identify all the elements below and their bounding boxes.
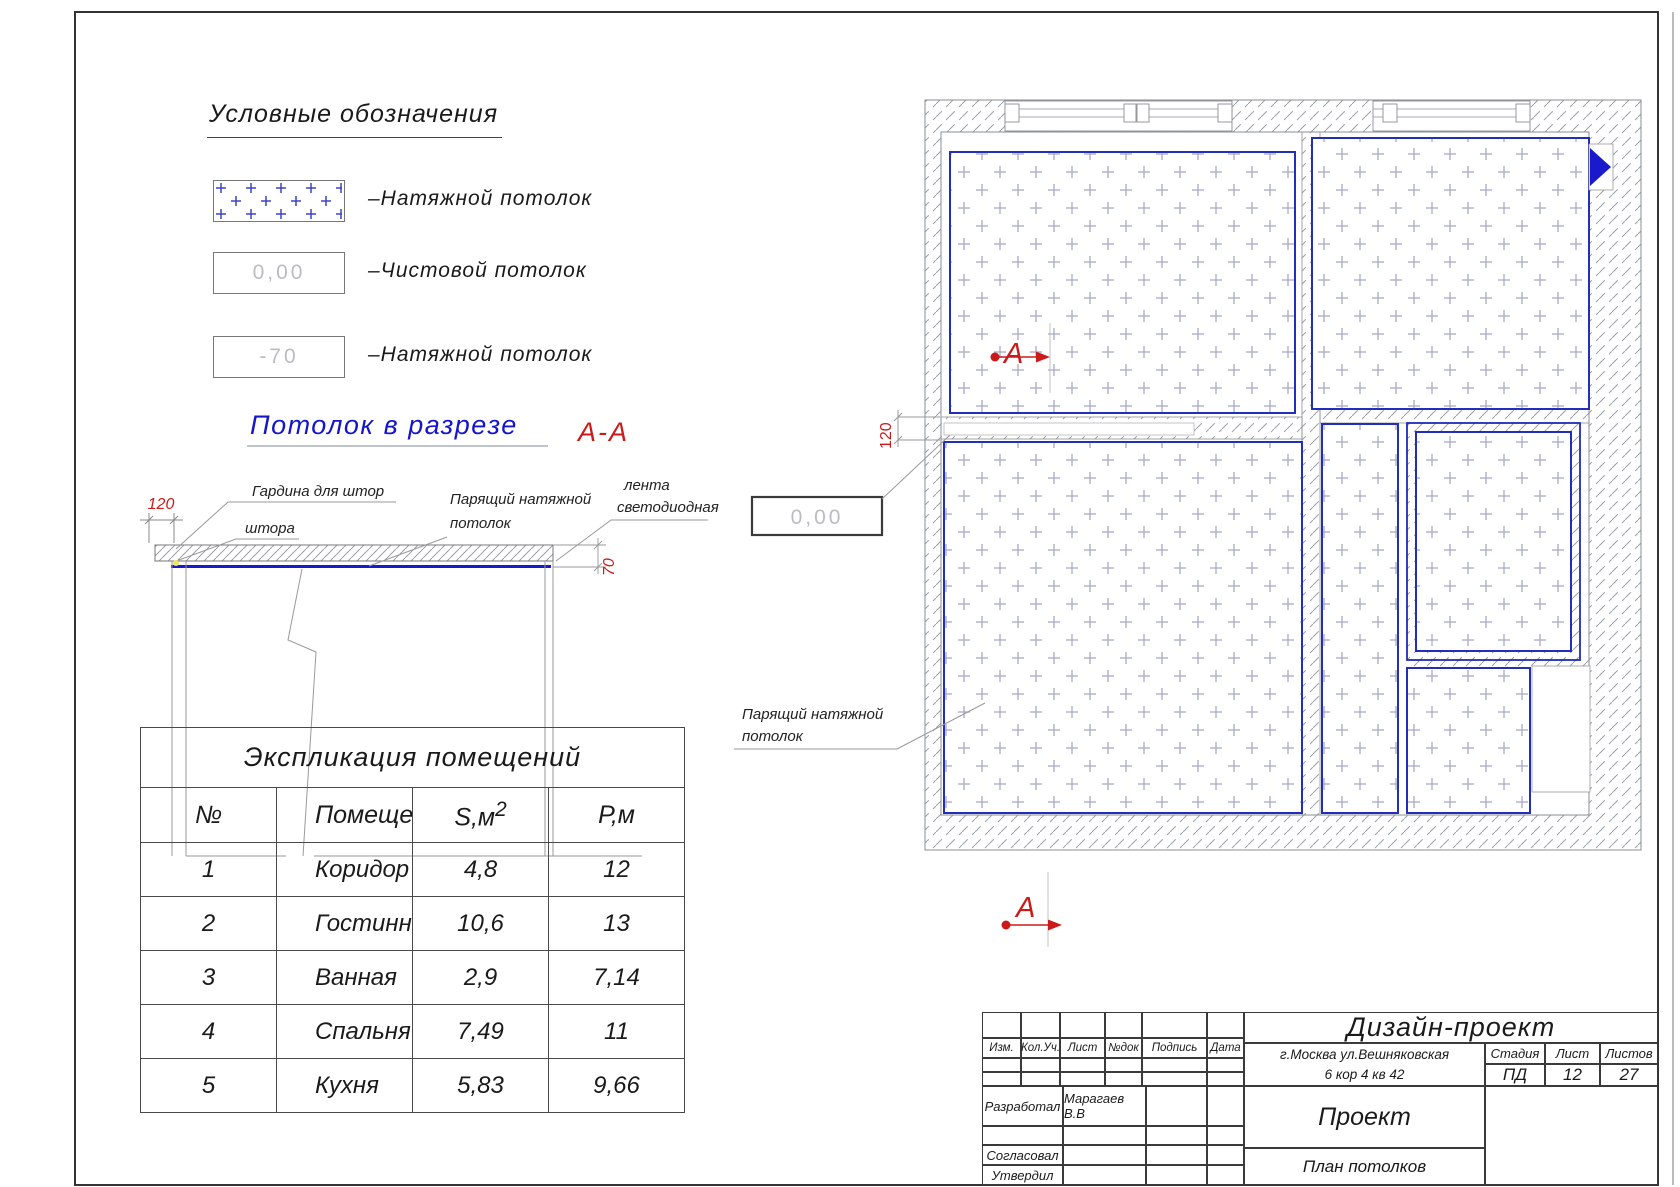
legend-title: Условные обозначения: [207, 100, 502, 138]
stage-value: ПД: [1485, 1064, 1545, 1086]
empty-cell: [1063, 1165, 1146, 1185]
rev-cell: [982, 1058, 1021, 1072]
svg-text:70: 70: [601, 558, 618, 576]
address-line-2: 6 кор 4 кв 42: [1325, 1065, 1405, 1085]
svg-text:Парящий натяжной: Парящий натяжной: [742, 706, 884, 723]
col-header-perimeter: Р,м: [549, 788, 685, 843]
stage-label: Стадия: [1485, 1043, 1545, 1064]
empty-cell: [1146, 1165, 1207, 1185]
table-row: 4 Спальня 7,49 11: [141, 1005, 685, 1059]
agreed-label: Согласовал: [982, 1145, 1063, 1165]
rev-cell: [982, 1012, 1021, 1038]
doc-type: Проект: [1244, 1086, 1485, 1148]
finished-ceiling-strip: [944, 423, 1194, 435]
svg-text:120: 120: [878, 422, 895, 449]
room-corridor-pattern: [1322, 424, 1398, 813]
table-row: 1 Коридор 4,8 12: [141, 843, 685, 897]
empty-cell: [1207, 1126, 1244, 1145]
rev-cell: [1060, 1058, 1105, 1072]
rev-cell: [1207, 1012, 1244, 1038]
col-header-num: №: [141, 788, 277, 843]
rev-col-koluch: Кол.Уч.: [1021, 1038, 1060, 1058]
room-bedroom-pattern: [1312, 138, 1589, 409]
section-dim-70: 70: [553, 538, 618, 576]
rev-col-izm: Изм.: [982, 1038, 1021, 1058]
developed-label: Разработал: [982, 1086, 1063, 1126]
rev-cell: [1060, 1012, 1105, 1038]
legend-label-finished: –Чистовой потолок: [368, 259, 587, 283]
table-row: 3 Ванная 2,9 7,14: [141, 951, 685, 1005]
section-title: Потолок в разрезе: [250, 410, 518, 440]
empty-cell: [1207, 1165, 1244, 1185]
rev-cell: [1142, 1072, 1207, 1086]
section-marker-bottom: А: [1002, 872, 1063, 947]
vent-marker: [1589, 144, 1613, 190]
rev-cell: [1105, 1058, 1142, 1072]
company-cell: [1485, 1086, 1658, 1185]
led-strip-label-1: лента: [623, 477, 670, 494]
room-kitchen-pattern: [944, 442, 1302, 813]
floating-ceiling-label-1: Парящий натяжной: [450, 491, 592, 508]
rev-col-list: Лист: [1060, 1038, 1105, 1058]
curtain-label: штора: [245, 520, 295, 537]
section-dim-120: 120: [140, 496, 183, 543]
rev-cell: [1021, 1012, 1060, 1038]
table-row: 2 Гостинная 10,6 13: [141, 897, 685, 951]
room-bath-pattern: [1416, 432, 1571, 651]
plan-niche: [1532, 666, 1590, 792]
empty-cell: [1146, 1126, 1207, 1145]
window-2: [1373, 101, 1530, 131]
legend: Условные обозначения: [207, 100, 502, 138]
empty-cell: [1063, 1145, 1146, 1165]
led-strip-label-2: светодиодная: [617, 499, 719, 516]
rev-cell: [1105, 1012, 1142, 1038]
ceiling-slab: [155, 545, 553, 561]
window-1: [1005, 101, 1232, 131]
empty-cell: [1146, 1145, 1207, 1165]
table-title: Экспликация помещений: [141, 728, 685, 788]
svg-text:А: А: [1002, 338, 1023, 370]
drawing-name: План потолков: [1244, 1148, 1485, 1185]
section-cut-label: А-А: [576, 417, 629, 447]
sheet-value: 12: [1545, 1064, 1600, 1086]
sheets-value: 27: [1600, 1064, 1658, 1086]
drawing-sheet: Потолок в разрезе А-А 120: [0, 0, 1680, 1187]
plan-rooms: [944, 138, 1589, 813]
date-cell: [1207, 1086, 1244, 1126]
explication-table: Экспликация помещений № Помещение S,м2 Р…: [140, 727, 685, 1113]
rev-col-ndok: №док: [1105, 1038, 1142, 1058]
rev-col-data: Дата: [1207, 1038, 1244, 1058]
floor-plan: 120 0,00 Парящий натяжной потолок А: [734, 100, 1641, 947]
title-block: Изм. Кол.Уч. Лист №док Подпись Дата Разр…: [982, 1012, 1658, 1185]
rev-cell: [1142, 1012, 1207, 1038]
legend-swatch-finished: 0,00: [213, 252, 345, 294]
svg-text:0,00: 0,00: [791, 506, 844, 529]
empty-role-cell: [982, 1126, 1063, 1145]
floating-ceiling-label-2: потолок: [450, 515, 512, 532]
table-row: 5 Кухня 5,83 9,66: [141, 1059, 685, 1113]
curtain-pocket-mark: [173, 560, 179, 566]
approved-label: Утвердил: [982, 1165, 1063, 1185]
svg-text:потолок: потолок: [742, 728, 804, 745]
svg-text:120: 120: [148, 496, 175, 513]
section-callouts: Гардина для штор штора Парящий натяжной …: [245, 477, 719, 537]
signature-cell: [1146, 1086, 1207, 1126]
table-header-row: № Помещение S,м2 Р,м: [141, 788, 685, 843]
rev-cell: [1142, 1058, 1207, 1072]
empty-cell: [1207, 1145, 1244, 1165]
legend-label-stretch: –Натяжной потолок: [368, 187, 592, 211]
room-hall-pattern: [1407, 668, 1530, 813]
svg-text:А: А: [1014, 892, 1035, 924]
room-living-pattern: [950, 152, 1295, 413]
legend-swatch-minus70: -70: [213, 336, 345, 378]
curtain-rod-label: Гардина для штор: [252, 483, 384, 500]
rev-cell: [1207, 1058, 1244, 1072]
rev-cell: [982, 1072, 1021, 1086]
address-cell: г.Москва ул.Вешняковская 6 кор 4 кв 42: [1244, 1043, 1485, 1086]
empty-cell: [1063, 1126, 1146, 1145]
level-mark: 0,00: [752, 435, 950, 535]
developed-by: Марагаев В.В: [1063, 1086, 1146, 1126]
legend-label-minus70: –Натяжной потолок: [368, 343, 592, 367]
col-header-area: S,м2: [413, 788, 549, 843]
rev-cell: [1060, 1072, 1105, 1086]
rev-col-podpis: Подпись: [1142, 1038, 1207, 1058]
rev-cell: [1105, 1072, 1142, 1086]
address-line-1: г.Москва ул.Вешняковская: [1280, 1045, 1449, 1065]
sheet-label: Лист: [1545, 1043, 1600, 1064]
rev-cell: [1021, 1072, 1060, 1086]
legend-swatch-stretch: [213, 180, 345, 222]
rev-cell: [1207, 1072, 1244, 1086]
plus-pattern-icon: [214, 181, 342, 219]
col-header-name: Помещение: [277, 788, 413, 843]
rev-cell: [1021, 1058, 1060, 1072]
sheets-label: Листов: [1600, 1043, 1658, 1064]
project-title: Дизайн-проект: [1244, 1012, 1658, 1043]
